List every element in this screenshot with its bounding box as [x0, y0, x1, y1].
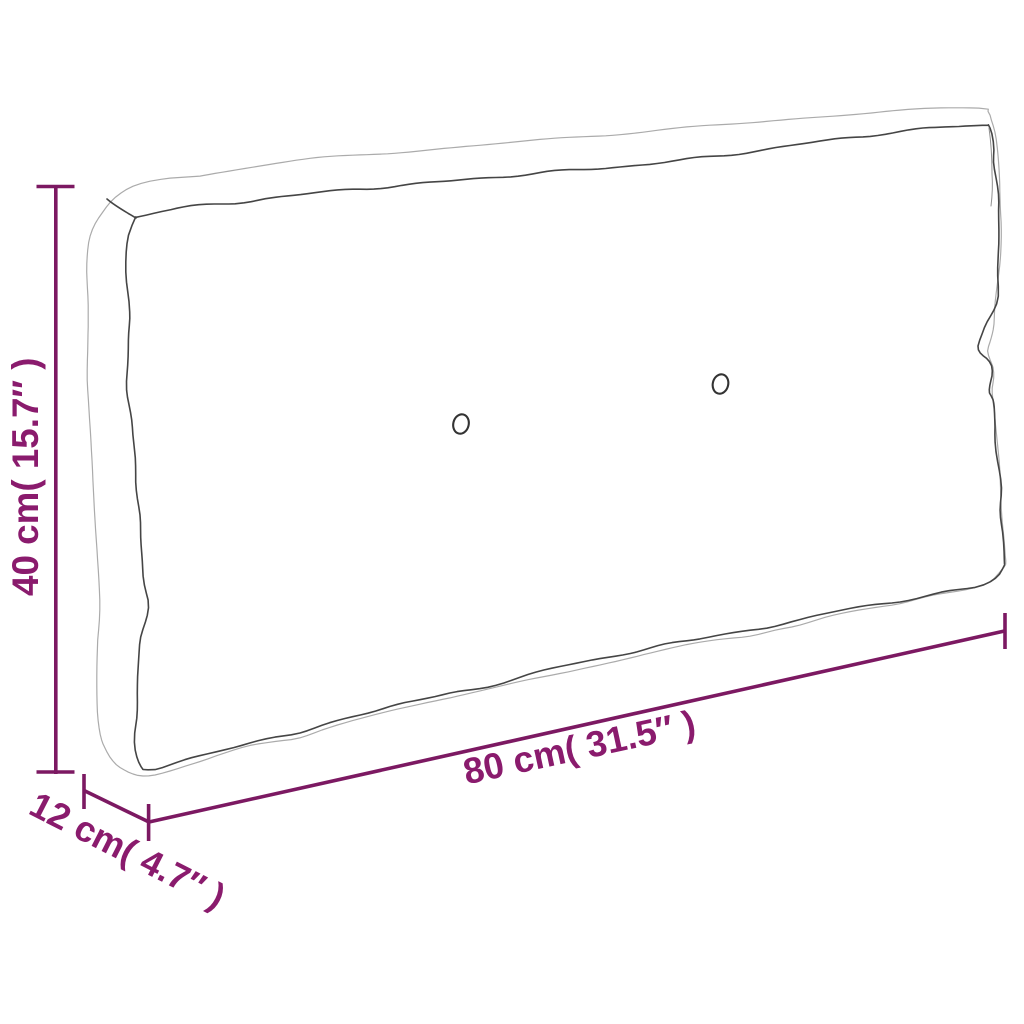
- svg-text:80 cm( 31.5″ ): 80 cm( 31.5″ ): [460, 702, 700, 792]
- svg-text:12 cm( 4.7″ ): 12 cm( 4.7″ ): [23, 784, 232, 917]
- svg-text:40 cm( 15.7″ ): 40 cm( 15.7″ ): [5, 357, 46, 596]
